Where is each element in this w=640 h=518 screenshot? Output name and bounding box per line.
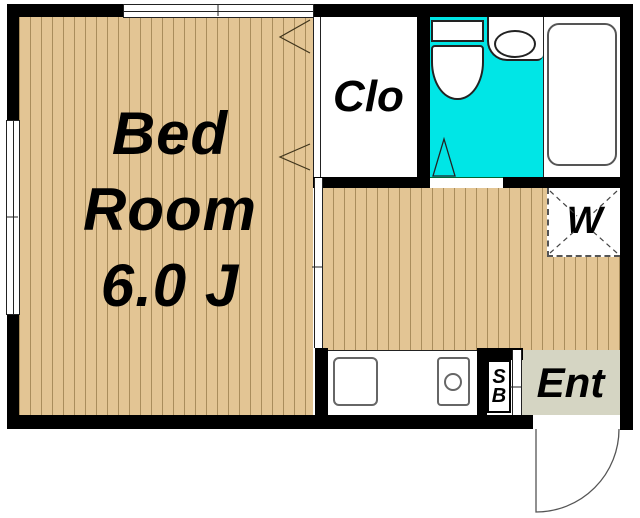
- window-pane-line: [13, 121, 14, 314]
- closet-label: Clo: [333, 72, 404, 122]
- bedroom-label: Bed Room 6.0 J: [40, 96, 300, 324]
- stove-burner: [444, 373, 462, 391]
- closet-area: Clo: [320, 17, 417, 177]
- bedroom-label-line3: 6.0 J: [40, 248, 300, 324]
- entrance-door-swing: [536, 429, 619, 512]
- washer-space: W: [547, 188, 620, 257]
- toilet-tank: [431, 20, 484, 42]
- wall-left-upper: [7, 4, 19, 120]
- window-pane-line: [124, 11, 313, 12]
- shoe-box-label-s: S: [492, 368, 505, 387]
- floor-plan: Clo Ent Bed Room 6.0 J W: [0, 0, 640, 518]
- wall-closet-bath-divider: [417, 17, 430, 188]
- bedroom-sliding-door: [314, 178, 323, 348]
- wall-top-right: [313, 4, 632, 17]
- closet-front-wall: [313, 17, 321, 177]
- wall-right: [620, 4, 633, 430]
- bathtub: [547, 23, 617, 166]
- wall-mid-right: [503, 177, 620, 188]
- wall-bottom: [7, 415, 533, 429]
- bedroom-label-line2: Room: [40, 172, 300, 248]
- bedroom-left-window: [6, 120, 20, 315]
- wash-basin-bowl: [494, 30, 536, 58]
- entrance-area: Ent: [521, 350, 620, 415]
- shoe-box-label-b: B: [492, 387, 506, 406]
- wall-left-lower: [7, 313, 19, 429]
- bedroom-top-window: [123, 4, 314, 18]
- shoe-box: S B: [487, 360, 511, 413]
- entrance-label: Ent: [537, 359, 605, 407]
- wall-kitchen-left-stub: [315, 348, 328, 429]
- bath-tub-divider: [543, 17, 544, 177]
- washer-label: W: [567, 200, 603, 243]
- bedroom-label-line1: Bed: [40, 96, 300, 172]
- wall-mid-left: [313, 177, 430, 188]
- wall-top-left: [7, 4, 123, 17]
- entrance-step-divider: [512, 350, 522, 415]
- kitchen-sink: [333, 357, 378, 406]
- wall-kitchen-right-stub: [477, 348, 487, 429]
- wall-entrance-bottom-stub: [523, 415, 533, 429]
